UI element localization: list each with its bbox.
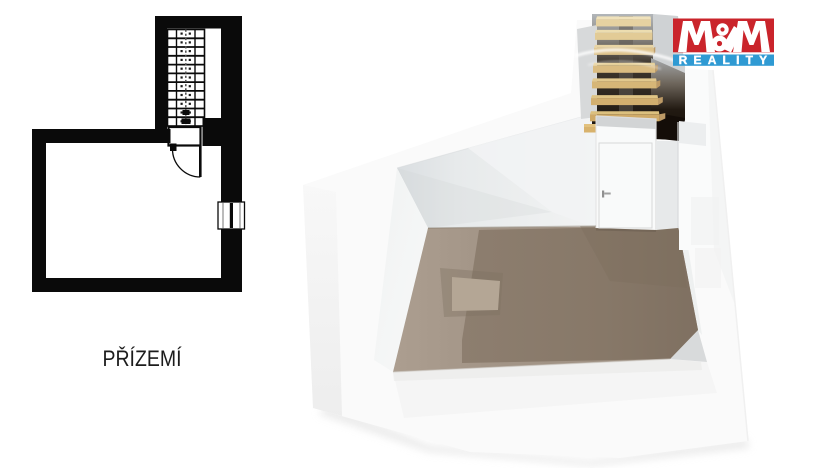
svg-text:REALITY: REALITY (679, 53, 774, 67)
svg-text:PŘÍZEMÍ: PŘÍZEMÍ (102, 346, 182, 371)
